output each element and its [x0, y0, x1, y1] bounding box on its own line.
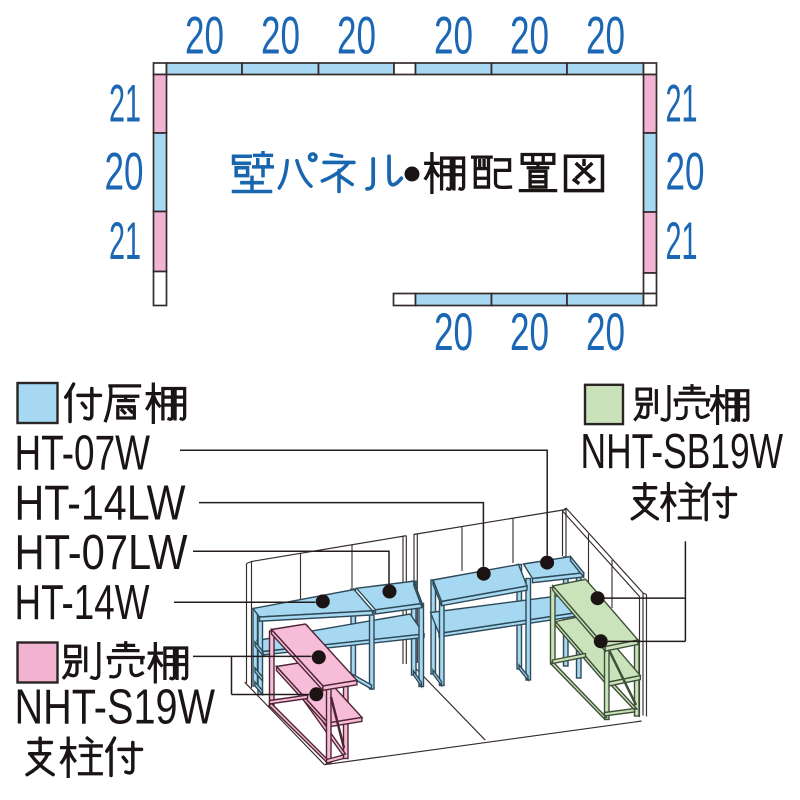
svg-text:20: 20	[586, 7, 625, 66]
svg-text:20: 20	[666, 143, 705, 202]
svg-text:NHT-SB19W: NHT-SB19W	[581, 425, 784, 479]
svg-text:HT-07LW: HT-07LW	[15, 526, 189, 580]
svg-text:20: 20	[434, 7, 473, 66]
svg-text:HT-07W: HT-07W	[15, 427, 151, 481]
svg-text:HT-14W: HT-14W	[15, 576, 151, 630]
svg-text:20: 20	[105, 143, 144, 202]
svg-text:20: 20	[586, 303, 625, 362]
svg-text:20: 20	[185, 7, 224, 66]
svg-text:21: 21	[666, 75, 698, 134]
svg-text:21: 21	[109, 212, 141, 271]
svg-text:HT-14LW: HT-14LW	[15, 477, 187, 531]
svg-text:20: 20	[337, 7, 376, 66]
svg-text:20: 20	[510, 7, 549, 66]
svg-text:20: 20	[434, 303, 473, 362]
svg-text:20: 20	[510, 303, 549, 362]
svg-text:20: 20	[261, 7, 300, 66]
svg-text:NHT-S19W: NHT-S19W	[15, 681, 216, 735]
svg-text:21: 21	[109, 75, 141, 134]
svg-text:21: 21	[666, 212, 698, 271]
